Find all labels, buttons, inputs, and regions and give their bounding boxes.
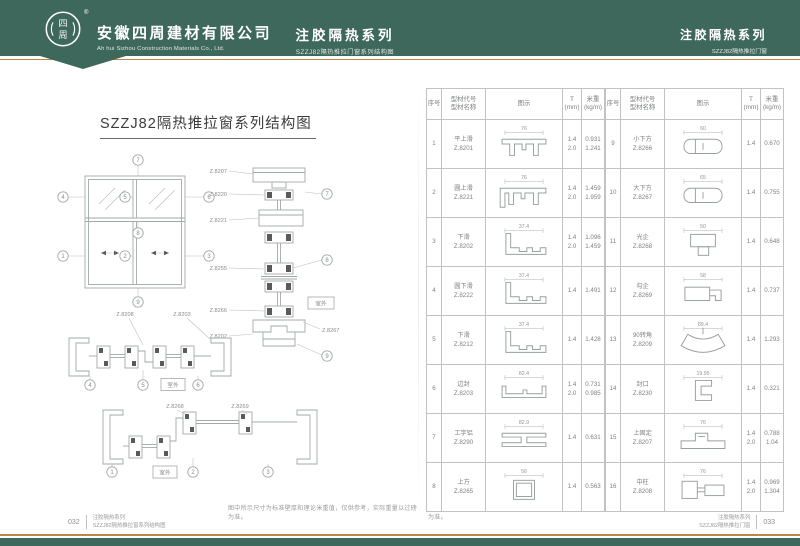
profile-row: 2圆上滑Z.8221761.4 2.01.459 1.959 bbox=[427, 169, 605, 218]
header-thickness: T (mm) bbox=[742, 89, 761, 120]
svg-text:76: 76 bbox=[521, 126, 527, 132]
horizontal-top-callouts: 4 5 6 bbox=[85, 370, 203, 390]
profile-code: Z.8201 bbox=[442, 144, 485, 153]
profile-table-2: 序号 型材代号 型材名称 图示 T (mm) 米重 (kg/m) 9小下方Z.8… bbox=[605, 88, 784, 512]
diagram-title: SZZJ82隔热推拉窗系列结构图 bbox=[100, 112, 316, 139]
company-name: 安徽四周建材有限公司 bbox=[97, 22, 272, 43]
svg-text:37.4: 37.4 bbox=[519, 273, 529, 279]
profile-name-code: 圆下滑Z.8222 bbox=[442, 267, 486, 316]
profile-sketch: 60 bbox=[668, 124, 738, 164]
horizontal-section-bottom bbox=[103, 410, 317, 464]
profile-row: 15上固定Z.8207761.4 2.00.788 1.04 bbox=[606, 414, 784, 463]
profile-row: 3下滑Z.820237.41.4 2.01.096 1.459 bbox=[427, 218, 605, 267]
svg-text:Z.8266: Z.8266 bbox=[210, 308, 227, 314]
profile-code: Z.8222 bbox=[442, 291, 485, 300]
profile-sketch: 19.95 bbox=[668, 369, 738, 409]
svg-text:65: 65 bbox=[700, 175, 706, 181]
profile-diagram: 60 bbox=[665, 120, 742, 169]
profile-diagram: 82.9 bbox=[486, 414, 563, 463]
footer-doc-right: SZZJ82隔热推拉门窗 bbox=[699, 522, 750, 530]
profile-code: Z.8230 bbox=[621, 389, 664, 398]
profile-name: 封口 bbox=[621, 380, 664, 389]
row-no: 6 bbox=[427, 365, 442, 414]
profile-diagram: 37.4 bbox=[486, 316, 563, 365]
profile-weight: 1.293 bbox=[761, 316, 784, 365]
glass-hatch bbox=[99, 188, 175, 210]
row-no: 12 bbox=[606, 267, 621, 316]
profile-weight: 1.096 1.459 bbox=[582, 218, 605, 267]
profile-name-code: 下滑Z.8212 bbox=[442, 316, 486, 365]
footer-accent-line bbox=[0, 534, 800, 536]
profile-row: 8上方Z.8265561.40.563 bbox=[427, 463, 605, 512]
row-no: 8 bbox=[427, 463, 442, 512]
profile-row: 10大下方Z.8267651.40.755 bbox=[606, 169, 784, 218]
profile-name: 光企 bbox=[621, 233, 664, 242]
profile-code: Z.8267 bbox=[621, 193, 664, 202]
row-no: 2 bbox=[427, 169, 442, 218]
row-no: 9 bbox=[606, 120, 621, 169]
profile-diagram: 82.4 bbox=[486, 365, 563, 414]
svg-text:Z.8255: Z.8255 bbox=[210, 266, 227, 272]
profile-name-code: 小下方Z.8266 bbox=[621, 120, 665, 169]
profile-name: 上方 bbox=[442, 478, 485, 487]
profile-weight: 1.491 bbox=[582, 267, 605, 316]
svg-text:58: 58 bbox=[700, 273, 706, 279]
footer-divider bbox=[86, 515, 87, 529]
row-no: 10 bbox=[606, 169, 621, 218]
profile-diagram: 76 bbox=[486, 120, 563, 169]
profile-name: 下滑 bbox=[442, 331, 485, 340]
header-accent-line bbox=[0, 59, 800, 61]
profile-name: 边封 bbox=[442, 380, 485, 389]
profile-name: 勾企 bbox=[621, 282, 664, 291]
profile-thickness: 1.4 2.0 bbox=[742, 463, 761, 512]
profile-row: 7工字铝Z.829082.91.40.631 bbox=[427, 414, 605, 463]
profile-code: Z.8221 bbox=[442, 193, 485, 202]
svg-text:Z.8208: Z.8208 bbox=[116, 312, 133, 318]
profile-name: 圆下滑 bbox=[442, 282, 485, 291]
profile-code: Z.8208 bbox=[621, 487, 664, 496]
profile-name: 下滑 bbox=[442, 233, 485, 242]
svg-text:37.4: 37.4 bbox=[519, 322, 529, 328]
profile-weight: 0.631 bbox=[582, 414, 605, 463]
svg-text:76: 76 bbox=[521, 175, 527, 181]
catalog-spread: 四 周 ® 安徽四周建材有限公司 Ah hui Sizhou Construct… bbox=[0, 0, 800, 546]
row-no: 1 bbox=[427, 120, 442, 169]
profile-name-code: 平上滑Z.8201 bbox=[442, 120, 486, 169]
profile-thickness: 1.4 bbox=[742, 316, 761, 365]
profile-diagram: 37.4 bbox=[486, 218, 563, 267]
company-block: 安徽四周建材有限公司 Ah hui Sizhou Construction Ma… bbox=[97, 22, 272, 52]
svg-text:室外: 室外 bbox=[159, 469, 171, 477]
profile-thickness: 1.4 bbox=[563, 267, 582, 316]
profile-row: 9小下方Z.8266601.40.670 bbox=[606, 120, 784, 169]
profile-row: 14封口Z.823019.951.40.321 bbox=[606, 365, 784, 414]
svg-text:76: 76 bbox=[700, 420, 706, 426]
outdoor-box-vertical: 室外 bbox=[308, 297, 334, 309]
profile-weight: 0.931 1.241 bbox=[582, 120, 605, 169]
header-ribbon bbox=[40, 56, 126, 69]
profile-weight: 0.321 bbox=[761, 365, 784, 414]
header-weight: 米重 (kg/m) bbox=[761, 89, 784, 120]
page-fold bbox=[418, 70, 419, 524]
svg-text:37.4: 37.4 bbox=[519, 224, 529, 230]
horizontal-section-top-labels: Z.8208 Z.8203 bbox=[116, 312, 211, 345]
profile-code: Z.8290 bbox=[442, 438, 485, 447]
profile-sketch: 82.4 bbox=[489, 369, 559, 409]
profile-code: Z.8266 bbox=[621, 144, 664, 153]
svg-text:76: 76 bbox=[700, 469, 706, 475]
profile-row: 4圆下滑Z.822237.41.41.491 bbox=[427, 267, 605, 316]
horizontal-section-top-gaskets bbox=[99, 348, 192, 366]
profile-diagram: 19.95 bbox=[665, 365, 742, 414]
profile-diagram: 56 bbox=[486, 463, 563, 512]
profile-name-code: 封口Z.8230 bbox=[621, 365, 665, 414]
footer-series-right: 注胶隔热系列 bbox=[699, 514, 750, 522]
profile-sketch: 76 bbox=[489, 173, 559, 213]
row-no: 4 bbox=[427, 267, 442, 316]
svg-text:室外: 室外 bbox=[315, 300, 327, 308]
row-no: 11 bbox=[606, 218, 621, 267]
profile-code: Z.8212 bbox=[442, 340, 485, 349]
profile-name-code: 90转角Z.8209 bbox=[621, 316, 665, 365]
svg-text:Z.8221: Z.8221 bbox=[210, 218, 227, 224]
profile-name-code: 中柱Z.8208 bbox=[621, 463, 665, 512]
svg-text:56: 56 bbox=[521, 469, 527, 475]
svg-text:Z.8203: Z.8203 bbox=[173, 312, 190, 318]
profile-thickness: 1.4 bbox=[563, 463, 582, 512]
svg-text:Z.8267: Z.8267 bbox=[322, 328, 339, 334]
profile-name-code: 勾企Z.8269 bbox=[621, 267, 665, 316]
header-no: 序号 bbox=[606, 89, 621, 120]
footer-series-left: 注胶隔热系列 bbox=[93, 514, 166, 522]
profile-sketch: 58 bbox=[668, 271, 738, 311]
profile-row: 12勾企Z.8269581.40.737 bbox=[606, 267, 784, 316]
profile-diagram: 58 bbox=[665, 267, 742, 316]
profile-name-code: 下滑Z.8202 bbox=[442, 218, 486, 267]
row-no: 14 bbox=[606, 365, 621, 414]
profile-thickness: 1.4 bbox=[742, 218, 761, 267]
header-no: 序号 bbox=[427, 89, 442, 120]
company-name-en: Ah hui Sizhou Construction Materials Co.… bbox=[97, 46, 272, 52]
footer-divider bbox=[756, 515, 757, 529]
series-title-right-block: 注胶隔热系列 SZZJ82隔热推拉门窗 bbox=[680, 26, 767, 55]
profile-table-1: 序号 型材代号 型材名称 图示 T (mm) 米重 (kg/m) 1平上滑Z.8… bbox=[426, 88, 605, 512]
horizontal-bottom-callouts: 1 2 3 bbox=[107, 458, 273, 477]
row-no: 13 bbox=[606, 316, 621, 365]
profile-thickness: 1.4 bbox=[742, 169, 761, 218]
profile-name: 小下方 bbox=[621, 135, 664, 144]
profile-name: 90转角 bbox=[621, 331, 664, 340]
svg-text:Z.8220: Z.8220 bbox=[210, 192, 227, 198]
profile-weight: 0.648 bbox=[761, 218, 784, 267]
profile-code: Z.8265 bbox=[442, 487, 485, 496]
row-no: 5 bbox=[427, 316, 442, 365]
table-header-row: 序号 型材代号 型材名称 图示 T (mm) 米重 (kg/m) bbox=[606, 89, 784, 120]
profile-diagram: 89.4 bbox=[665, 316, 742, 365]
profile-weight: 0.731 0.985 bbox=[582, 365, 605, 414]
svg-text:Z.8269: Z.8269 bbox=[231, 404, 248, 410]
header-name: 型材代号 型材名称 bbox=[442, 89, 486, 120]
svg-text:60: 60 bbox=[700, 126, 706, 132]
logo-char-top: 四 bbox=[58, 19, 67, 29]
profile-name-code: 边封Z.8203 bbox=[442, 365, 486, 414]
profile-thickness: 1.4 bbox=[563, 414, 582, 463]
profile-name-code: 上方Z.8265 bbox=[442, 463, 486, 512]
row-no: 16 bbox=[606, 463, 621, 512]
profile-thickness: 1.4 2.0 bbox=[742, 414, 761, 463]
svg-text:82.9: 82.9 bbox=[519, 420, 529, 426]
page-number-left: 032 bbox=[68, 519, 80, 526]
structure-diagram: 1 2 3 4 5 6 7 8 9 bbox=[25, 148, 415, 493]
profile-sketch: 76 bbox=[489, 124, 559, 164]
header-diagram: 图示 bbox=[665, 89, 742, 120]
logo-char-bottom: 周 bbox=[58, 30, 67, 40]
profile-sketch: 89.4 bbox=[668, 320, 738, 360]
slide-arrows bbox=[101, 251, 169, 255]
profile-weight: 0.737 bbox=[761, 267, 784, 316]
profile-weight: 1.428 bbox=[582, 316, 605, 365]
profile-code: Z.8269 bbox=[621, 291, 664, 300]
profile-weight: 0.563 bbox=[582, 463, 605, 512]
profile-name-code: 上固定Z.8207 bbox=[621, 414, 665, 463]
profile-thickness: 1.4 bbox=[563, 316, 582, 365]
profile-name-code: 工字铝Z.8290 bbox=[442, 414, 486, 463]
svg-text:室外: 室外 bbox=[167, 381, 179, 389]
profile-diagram: 76 bbox=[665, 463, 742, 512]
profile-code: Z.8203 bbox=[442, 389, 485, 398]
svg-text:89.4: 89.4 bbox=[698, 322, 708, 328]
row-no: 3 bbox=[427, 218, 442, 267]
header-diagram: 图示 bbox=[486, 89, 563, 120]
page-number-right: 033 bbox=[763, 519, 775, 526]
profile-weight: 1.459 1.959 bbox=[582, 169, 605, 218]
horizontal-section-top bbox=[69, 338, 231, 376]
profile-diagram: 76 bbox=[486, 169, 563, 218]
profile-code: Z.8202 bbox=[442, 242, 485, 251]
profile-code: Z.8207 bbox=[621, 438, 664, 447]
company-logo-icon: 四 周 bbox=[44, 10, 82, 48]
profile-thickness: 1.4 bbox=[742, 267, 761, 316]
profile-row: 1平上滑Z.8201761.4 2.00.931 1.241 bbox=[427, 120, 605, 169]
profile-row: 11光企Z.8268501.40.648 bbox=[606, 218, 784, 267]
profile-name-code: 圆上滑Z.8221 bbox=[442, 169, 486, 218]
profile-sketch: 37.4 bbox=[489, 222, 559, 262]
profile-name: 大下方 bbox=[621, 184, 664, 193]
profile-sketch: 50 bbox=[668, 222, 738, 262]
profile-name: 平上滑 bbox=[442, 135, 485, 144]
svg-text:82.4: 82.4 bbox=[519, 371, 529, 377]
profile-thickness: 1.4 2.0 bbox=[563, 169, 582, 218]
table-header-row: 序号 型材代号 型材名称 图示 T (mm) 米重 (kg/m) bbox=[427, 89, 605, 120]
horizontal-section-bottom-labels: Z.8268 Z.8269 bbox=[166, 404, 248, 414]
profile-thickness: 1.4 2.0 bbox=[563, 365, 582, 414]
header-thickness: T (mm) bbox=[563, 89, 582, 120]
profile-sketch: 76 bbox=[668, 467, 738, 507]
profile-sketch: 56 bbox=[489, 467, 559, 507]
series-title: 注胶隔热系列 bbox=[250, 24, 440, 44]
profile-diagram: 50 bbox=[665, 218, 742, 267]
profile-name-code: 光企Z.8268 bbox=[621, 218, 665, 267]
profile-row: 6边封Z.820382.41.4 2.00.731 0.985 bbox=[427, 365, 605, 414]
profile-code: Z.8268 bbox=[621, 242, 664, 251]
profile-diagram: 76 bbox=[665, 414, 742, 463]
profile-diagram: 65 bbox=[665, 169, 742, 218]
svg-text:Z.8207: Z.8207 bbox=[210, 169, 227, 175]
svg-text:Z.8268: Z.8268 bbox=[166, 404, 183, 410]
svg-text:50: 50 bbox=[700, 224, 706, 230]
profile-weight: 0.755 bbox=[761, 169, 784, 218]
header-weight: 米重 (kg/m) bbox=[582, 89, 605, 120]
left-page-note: 图中所示尺寸为标准壁厚和理论米重值，仅供参考，实际重量以过磅为准。 bbox=[228, 503, 420, 521]
registered-trademark: ® bbox=[84, 10, 88, 16]
profile-sketch: 82.9 bbox=[489, 418, 559, 458]
row-no: 15 bbox=[606, 414, 621, 463]
profile-row: 1390转角Z.820989.41.41.293 bbox=[606, 316, 784, 365]
profile-sketch: 37.4 bbox=[489, 271, 559, 311]
profile-name: 中柱 bbox=[621, 478, 664, 487]
profile-name: 工字铝 bbox=[442, 429, 485, 438]
profile-sketch: 37.4 bbox=[489, 320, 559, 360]
profile-diagram: 37.4 bbox=[486, 267, 563, 316]
profile-weight: 0.788 1.04 bbox=[761, 414, 784, 463]
series-title-right: 注胶隔热系列 bbox=[680, 26, 767, 43]
profile-sketch: 76 bbox=[668, 418, 738, 458]
header-name: 型材代号 型材名称 bbox=[621, 89, 665, 120]
outdoor-box-top-section: 室外 bbox=[161, 379, 185, 391]
outdoor-box-bottom-section: 室外 bbox=[153, 466, 177, 478]
profile-name: 圆上滑 bbox=[442, 184, 485, 193]
profile-thickness: 1.4 2.0 bbox=[563, 218, 582, 267]
series-title-center: 注胶隔热系列 SZZJ82隔热推拉门窗系列结构图 bbox=[250, 24, 440, 56]
series-subtitle: SZZJ82隔热推拉门窗系列结构图 bbox=[250, 47, 440, 56]
footer-right: 注胶隔热系列 SZZJ82隔热推拉门窗 033 bbox=[699, 514, 775, 531]
row-no: 7 bbox=[427, 414, 442, 463]
profile-name: 上固定 bbox=[621, 429, 664, 438]
profile-row: 16中柱Z.8208761.4 2.00.969 1.304 bbox=[606, 463, 784, 512]
profile-weight: 0.969 1.304 bbox=[761, 463, 784, 512]
profile-name-code: 大下方Z.8267 bbox=[621, 169, 665, 218]
series-subtitle-right: SZZJ82隔热推拉门窗 bbox=[680, 46, 767, 55]
profile-thickness: 1.4 bbox=[742, 120, 761, 169]
profile-sketch: 65 bbox=[668, 173, 738, 213]
profile-row: 5下滑Z.821237.41.41.428 bbox=[427, 316, 605, 365]
profile-thickness: 1.4 2.0 bbox=[563, 120, 582, 169]
profile-code: Z.8209 bbox=[621, 340, 664, 349]
svg-text:19.95: 19.95 bbox=[696, 371, 709, 377]
footer-doc-left: SZZJ82隔热推拉窗系列结构图 bbox=[93, 522, 166, 530]
footer-green-strip bbox=[0, 538, 800, 546]
svg-text:Z.8202: Z.8202 bbox=[210, 334, 227, 340]
vertical-section-labels: Z.8207 Z.8220 Z.8221 Z.8255 Z.8266 Z.820… bbox=[210, 169, 340, 340]
footer-left: 032 注胶隔热系列 SZZJ82隔热推拉窗系列结构图 bbox=[68, 514, 165, 531]
profile-thickness: 1.4 bbox=[742, 365, 761, 414]
profile-weight: 0.670 bbox=[761, 120, 784, 169]
